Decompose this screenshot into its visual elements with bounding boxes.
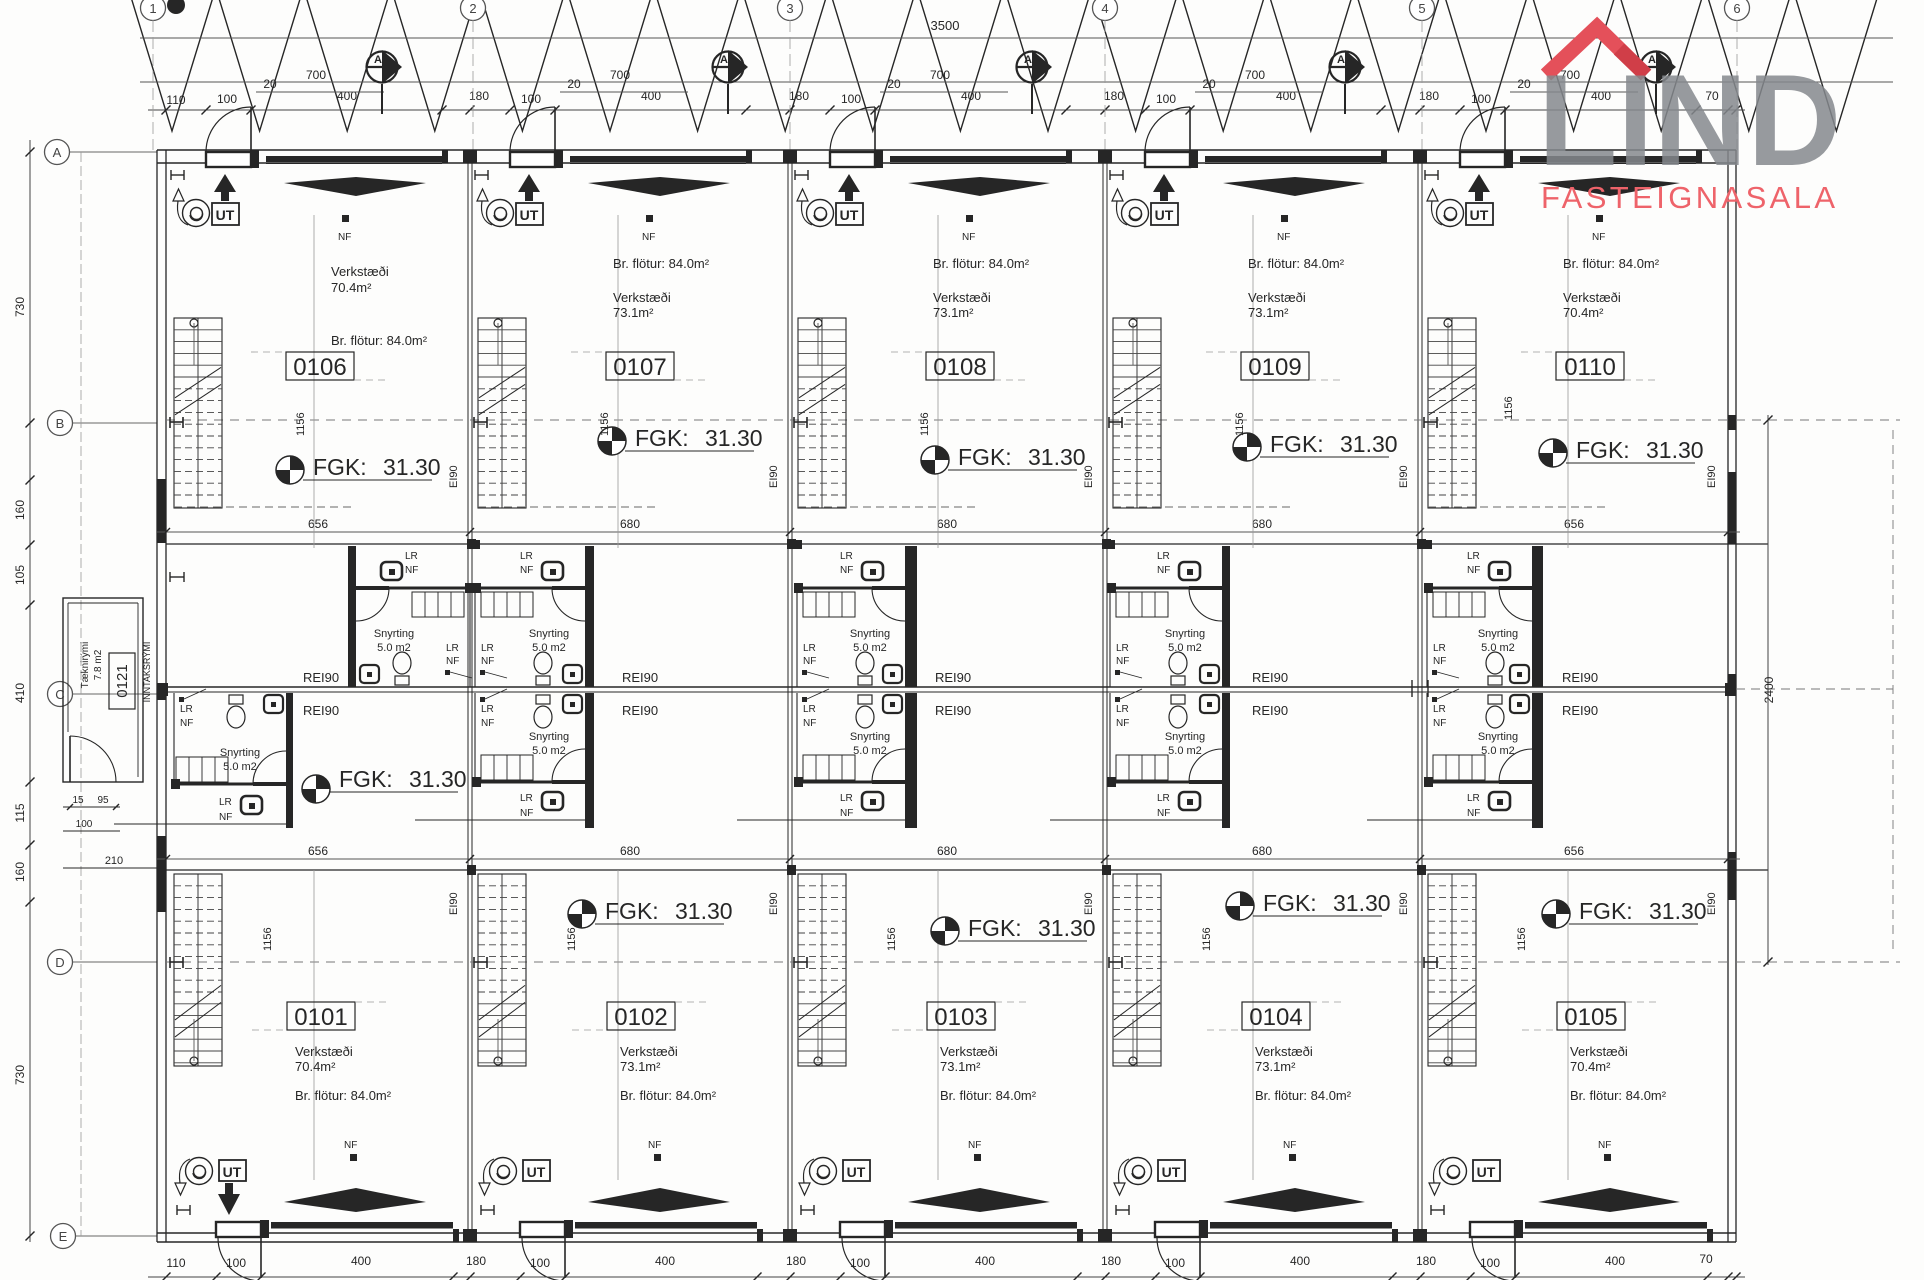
svg-text:LR: LR xyxy=(446,643,459,654)
svg-text:Verkstæði: Verkstæði xyxy=(1248,290,1306,305)
svg-text:LR: LR xyxy=(180,704,193,715)
svg-text:656: 656 xyxy=(308,844,328,858)
svg-text:Br. flötur: 84.0m²: Br. flötur: 84.0m² xyxy=(1563,256,1660,271)
svg-text:NF: NF xyxy=(1467,565,1480,576)
svg-text:INNTAKSRÝMI: INNTAKSRÝMI xyxy=(142,642,152,703)
svg-text:UT: UT xyxy=(216,207,235,223)
svg-text:FGK:: FGK: xyxy=(1263,890,1317,916)
svg-text:5.0 m2: 5.0 m2 xyxy=(1168,745,1202,757)
svg-text:680: 680 xyxy=(937,517,957,531)
svg-text:Snyrting: Snyrting xyxy=(1165,731,1205,743)
svg-text:Br. flötur: 84.0m²: Br. flötur: 84.0m² xyxy=(1248,256,1345,271)
svg-text:LR: LR xyxy=(1467,793,1480,804)
svg-text:656: 656 xyxy=(1564,844,1584,858)
svg-text:Br. flötur: 84.0m²: Br. flötur: 84.0m² xyxy=(1570,1088,1667,1103)
svg-text:160: 160 xyxy=(13,500,27,520)
svg-text:7.8 m2: 7.8 m2 xyxy=(93,649,104,680)
svg-text:Br. flötur: 84.0m²: Br. flötur: 84.0m² xyxy=(331,333,428,348)
svg-text:LR: LR xyxy=(520,551,533,562)
svg-text:400: 400 xyxy=(1605,1254,1625,1268)
svg-text:Br. flötur: 84.0m²: Br. flötur: 84.0m² xyxy=(1255,1088,1352,1103)
svg-text:Snyrting: Snyrting xyxy=(1478,628,1518,640)
svg-text:1156: 1156 xyxy=(295,412,307,436)
svg-text:REI90: REI90 xyxy=(935,703,971,718)
svg-text:5.0 m2: 5.0 m2 xyxy=(532,745,566,757)
svg-text:Verkstæði: Verkstæði xyxy=(940,1044,998,1059)
svg-text:0101: 0101 xyxy=(294,1004,347,1031)
svg-text:A: A xyxy=(53,145,62,160)
svg-text:Snyrting: Snyrting xyxy=(1165,628,1205,640)
svg-text:73.1m²: 73.1m² xyxy=(933,305,974,320)
svg-text:0102: 0102 xyxy=(614,1004,667,1031)
svg-text:1: 1 xyxy=(149,1,156,16)
svg-text:1156: 1156 xyxy=(1516,927,1528,951)
svg-text:LIND: LIND xyxy=(1538,47,1841,193)
svg-text:2400: 2400 xyxy=(1762,676,1776,703)
svg-text:656: 656 xyxy=(1564,517,1584,531)
svg-text:73.1m²: 73.1m² xyxy=(1248,305,1289,320)
svg-text:LR: LR xyxy=(1157,793,1170,804)
svg-text:NF: NF xyxy=(1277,232,1290,243)
svg-text:31.30: 31.30 xyxy=(1340,431,1398,457)
svg-text:EI90: EI90 xyxy=(1706,465,1718,488)
svg-text:31.30: 31.30 xyxy=(409,766,467,792)
svg-text:5.0 m2: 5.0 m2 xyxy=(223,761,257,773)
svg-text:20: 20 xyxy=(887,77,901,91)
svg-text:70.4m²: 70.4m² xyxy=(295,1059,336,1074)
svg-text:31.30: 31.30 xyxy=(1038,915,1096,941)
svg-text:NF: NF xyxy=(338,232,351,243)
svg-text:4: 4 xyxy=(1101,1,1108,16)
svg-text:LR: LR xyxy=(405,551,418,562)
svg-text:73.1m²: 73.1m² xyxy=(620,1059,661,1074)
svg-text:Verkstæði: Verkstæði xyxy=(613,290,671,305)
svg-text:31.30: 31.30 xyxy=(383,454,441,480)
svg-text:NF: NF xyxy=(803,718,816,729)
svg-text:5: 5 xyxy=(1418,1,1425,16)
svg-text:680: 680 xyxy=(1252,844,1272,858)
svg-text:95: 95 xyxy=(97,795,109,806)
svg-text:FGK:: FGK: xyxy=(1579,898,1633,924)
svg-text:LR: LR xyxy=(840,551,853,562)
svg-text:NF: NF xyxy=(840,808,853,819)
svg-text:180: 180 xyxy=(466,1254,486,1268)
svg-text:LR: LR xyxy=(219,797,232,808)
svg-text:5.0 m2: 5.0 m2 xyxy=(532,642,566,654)
svg-text:730: 730 xyxy=(13,297,27,317)
svg-text:NF: NF xyxy=(962,232,975,243)
svg-text:NF: NF xyxy=(405,565,418,576)
svg-text:REI90: REI90 xyxy=(622,670,658,685)
svg-text:5.0 m2: 5.0 m2 xyxy=(853,745,887,757)
svg-text:1156: 1156 xyxy=(886,927,898,951)
svg-text:Snyrting: Snyrting xyxy=(220,747,260,759)
svg-text:680: 680 xyxy=(620,844,640,858)
svg-text:400: 400 xyxy=(337,89,357,103)
svg-text:NF: NF xyxy=(803,656,816,667)
svg-text:LR: LR xyxy=(1157,551,1170,562)
svg-text:FGK:: FGK: xyxy=(958,444,1012,470)
svg-text:1156: 1156 xyxy=(566,927,578,951)
svg-text:31.30: 31.30 xyxy=(1028,444,1086,470)
svg-text:Verkstæði: Verkstæði xyxy=(331,264,389,279)
svg-text:NF: NF xyxy=(840,565,853,576)
svg-text:20: 20 xyxy=(263,77,277,91)
svg-text:0107: 0107 xyxy=(613,354,666,381)
svg-text:5.0 m2: 5.0 m2 xyxy=(377,642,411,654)
svg-text:EI90: EI90 xyxy=(768,892,780,915)
svg-text:LR: LR xyxy=(1433,643,1446,654)
svg-text:0110: 0110 xyxy=(1564,354,1616,381)
svg-text:1156: 1156 xyxy=(599,412,611,436)
svg-text:Br. flötur: 84.0m²: Br. flötur: 84.0m² xyxy=(620,1088,717,1103)
svg-text:EI90: EI90 xyxy=(1083,465,1095,488)
svg-text:LR: LR xyxy=(840,793,853,804)
svg-text:NF: NF xyxy=(520,565,533,576)
svg-text:0106: 0106 xyxy=(293,354,346,381)
svg-text:Snyrting: Snyrting xyxy=(850,731,890,743)
svg-text:REI90: REI90 xyxy=(303,670,339,685)
svg-text:LR: LR xyxy=(1467,551,1480,562)
svg-text:100: 100 xyxy=(850,1256,870,1270)
svg-text:B: B xyxy=(56,416,65,431)
svg-text:5.0 m2: 5.0 m2 xyxy=(1481,642,1515,654)
svg-text:Br. flötur: 84.0m²: Br. flötur: 84.0m² xyxy=(940,1088,1037,1103)
svg-text:100: 100 xyxy=(1480,1256,1500,1270)
svg-text:100: 100 xyxy=(530,1256,550,1270)
svg-text:700: 700 xyxy=(1245,68,1265,82)
svg-text:REI90: REI90 xyxy=(935,670,971,685)
svg-text:REI90: REI90 xyxy=(622,703,658,718)
svg-text:FGK:: FGK: xyxy=(635,425,689,451)
svg-text:UT: UT xyxy=(840,207,859,223)
svg-text:70.4m²: 70.4m² xyxy=(331,280,372,295)
svg-text:FASTEIGNASALA: FASTEIGNASALA xyxy=(1541,180,1838,215)
svg-text:180: 180 xyxy=(1104,89,1124,103)
svg-text:210: 210 xyxy=(105,855,123,867)
svg-text:A: A xyxy=(1024,54,1032,66)
svg-text:REI90: REI90 xyxy=(1252,670,1288,685)
svg-text:NF: NF xyxy=(1598,1140,1611,1151)
svg-text:LR: LR xyxy=(803,704,816,715)
svg-text:2: 2 xyxy=(469,1,476,16)
svg-text:Verkstæði: Verkstæði xyxy=(1255,1044,1313,1059)
svg-text:73.1m²: 73.1m² xyxy=(1255,1059,1296,1074)
svg-text:31.30: 31.30 xyxy=(675,898,733,924)
svg-text:NF: NF xyxy=(344,1140,357,1151)
svg-text:FGK:: FGK: xyxy=(339,766,393,792)
svg-text:110: 110 xyxy=(166,93,185,107)
svg-text:REI90: REI90 xyxy=(1562,703,1598,718)
svg-text:700: 700 xyxy=(610,68,630,82)
svg-text:Br. flötur: 84.0m²: Br. flötur: 84.0m² xyxy=(613,256,710,271)
svg-text:73.1m²: 73.1m² xyxy=(613,305,654,320)
svg-text:NF: NF xyxy=(1467,808,1480,819)
svg-text:20: 20 xyxy=(567,77,581,91)
svg-text:NF: NF xyxy=(1592,232,1605,243)
svg-text:Verkstæði: Verkstæði xyxy=(620,1044,678,1059)
svg-text:410: 410 xyxy=(13,683,27,703)
svg-text:NF: NF xyxy=(180,718,193,729)
svg-text:100: 100 xyxy=(1471,92,1491,106)
svg-text:FGK:: FGK: xyxy=(968,915,1022,941)
svg-text:Tæknirými: Tæknirými xyxy=(80,642,91,689)
svg-text:LR: LR xyxy=(803,643,816,654)
svg-text:730: 730 xyxy=(13,1065,27,1085)
svg-text:656: 656 xyxy=(308,517,328,531)
svg-text:LR: LR xyxy=(1116,704,1129,715)
svg-text:400: 400 xyxy=(351,1254,371,1268)
svg-text:UT: UT xyxy=(847,1164,866,1180)
svg-text:EI90: EI90 xyxy=(1398,465,1410,488)
svg-text:0104: 0104 xyxy=(1249,1004,1302,1031)
svg-text:A: A xyxy=(374,54,382,66)
svg-text:680: 680 xyxy=(937,844,957,858)
svg-text:LR: LR xyxy=(481,704,494,715)
svg-text:UT: UT xyxy=(527,1164,546,1180)
svg-text:400: 400 xyxy=(1276,89,1296,103)
svg-text:180: 180 xyxy=(786,1254,806,1268)
svg-text:31.30: 31.30 xyxy=(705,425,763,451)
svg-text:NF: NF xyxy=(1116,656,1129,667)
svg-text:NF: NF xyxy=(481,656,494,667)
svg-text:1156: 1156 xyxy=(262,927,274,951)
svg-text:LR: LR xyxy=(1116,643,1129,654)
svg-text:180: 180 xyxy=(789,89,809,103)
svg-text:D: D xyxy=(55,955,64,970)
svg-text:180: 180 xyxy=(469,89,489,103)
svg-text:Verkstæði: Verkstæði xyxy=(933,290,991,305)
svg-text:680: 680 xyxy=(620,517,640,531)
svg-text:UT: UT xyxy=(520,207,539,223)
svg-text:LR: LR xyxy=(520,793,533,804)
svg-text:0108: 0108 xyxy=(933,354,986,381)
svg-text:FGK:: FGK: xyxy=(1270,431,1324,457)
svg-text:A: A xyxy=(1337,54,1345,66)
svg-text:400: 400 xyxy=(961,89,981,103)
svg-text:Snyrting: Snyrting xyxy=(529,731,569,743)
svg-text:70.4m²: 70.4m² xyxy=(1563,305,1604,320)
svg-text:0121: 0121 xyxy=(114,664,131,697)
svg-text:NF: NF xyxy=(1433,718,1446,729)
svg-text:UT: UT xyxy=(1470,207,1489,223)
svg-text:100: 100 xyxy=(217,92,237,106)
svg-text:Verkstæði: Verkstæði xyxy=(1570,1044,1628,1059)
svg-text:700: 700 xyxy=(930,68,950,82)
svg-text:180: 180 xyxy=(1101,1254,1121,1268)
svg-text:EI90: EI90 xyxy=(1706,892,1718,915)
svg-text:EI90: EI90 xyxy=(768,465,780,488)
svg-text:UT: UT xyxy=(1162,1164,1181,1180)
svg-text:3500: 3500 xyxy=(931,18,960,33)
svg-text:5.0 m2: 5.0 m2 xyxy=(853,642,887,654)
svg-text:31.30: 31.30 xyxy=(1646,437,1704,463)
svg-text:100: 100 xyxy=(1156,92,1176,106)
svg-text:400: 400 xyxy=(975,1254,995,1268)
svg-text:LR: LR xyxy=(481,643,494,654)
svg-text:3: 3 xyxy=(786,1,793,16)
svg-text:5.0 m2: 5.0 m2 xyxy=(1481,745,1515,757)
svg-text:REI90: REI90 xyxy=(1562,670,1598,685)
svg-text:FGK:: FGK: xyxy=(605,898,659,924)
svg-text:EI90: EI90 xyxy=(1398,892,1410,915)
svg-text:70.4m²: 70.4m² xyxy=(1570,1059,1611,1074)
svg-text:73.1m²: 73.1m² xyxy=(940,1059,981,1074)
svg-text:1156: 1156 xyxy=(1503,396,1515,420)
svg-text:115: 115 xyxy=(13,803,27,822)
svg-text:EI90: EI90 xyxy=(448,892,460,915)
svg-text:LR: LR xyxy=(1433,704,1446,715)
svg-text:1156: 1156 xyxy=(1201,927,1213,951)
svg-text:15: 15 xyxy=(72,795,84,806)
svg-text:Snyrting: Snyrting xyxy=(529,628,569,640)
svg-text:0103: 0103 xyxy=(934,1004,987,1031)
svg-text:Snyrting: Snyrting xyxy=(1478,731,1518,743)
svg-text:400: 400 xyxy=(641,89,661,103)
svg-text:Br. flötur: 84.0m²: Br. flötur: 84.0m² xyxy=(933,256,1030,271)
svg-text:A: A xyxy=(720,54,728,66)
svg-text:0105: 0105 xyxy=(1564,1004,1617,1031)
svg-text:5.0 m2: 5.0 m2 xyxy=(1168,642,1202,654)
svg-text:FGK:: FGK: xyxy=(313,454,367,480)
svg-text:NF: NF xyxy=(446,656,459,667)
svg-text:NF: NF xyxy=(481,718,494,729)
svg-text:EI90: EI90 xyxy=(1083,892,1095,915)
svg-text:1156: 1156 xyxy=(1234,412,1246,436)
svg-text:70: 70 xyxy=(1699,1252,1713,1266)
svg-text:Snyrting: Snyrting xyxy=(374,628,414,640)
svg-text:400: 400 xyxy=(655,1254,675,1268)
svg-text:100: 100 xyxy=(226,1256,246,1270)
svg-text:680: 680 xyxy=(1252,517,1272,531)
svg-text:31.30: 31.30 xyxy=(1333,890,1391,916)
svg-text:UT: UT xyxy=(1155,207,1174,223)
svg-text:Verkstæði: Verkstæði xyxy=(295,1044,353,1059)
svg-text:100: 100 xyxy=(1165,1256,1185,1270)
svg-text:Verkstæði: Verkstæði xyxy=(1563,290,1621,305)
svg-text:110: 110 xyxy=(166,1256,185,1270)
svg-text:180: 180 xyxy=(1416,1254,1436,1268)
svg-text:20: 20 xyxy=(1202,77,1216,91)
svg-text:100: 100 xyxy=(76,819,93,830)
svg-text:NF: NF xyxy=(1283,1140,1296,1151)
svg-text:UT: UT xyxy=(1477,1164,1496,1180)
svg-text:0109: 0109 xyxy=(1248,354,1301,381)
svg-text:100: 100 xyxy=(521,92,541,106)
svg-text:Br. flötur: 84.0m²: Br. flötur: 84.0m² xyxy=(295,1088,392,1103)
svg-text:EI90: EI90 xyxy=(448,465,460,488)
svg-text:NF: NF xyxy=(968,1140,981,1151)
svg-text:700: 700 xyxy=(306,68,326,82)
svg-text:NF: NF xyxy=(1116,718,1129,729)
svg-text:NF: NF xyxy=(642,232,655,243)
svg-text:NF: NF xyxy=(648,1140,661,1151)
svg-text:31.30: 31.30 xyxy=(1649,898,1707,924)
svg-text:UT: UT xyxy=(223,1164,242,1180)
svg-text:NF: NF xyxy=(520,808,533,819)
svg-text:FGK:: FGK: xyxy=(1576,437,1630,463)
svg-text:E: E xyxy=(59,1229,68,1244)
svg-text:160: 160 xyxy=(13,862,27,882)
svg-text:NF: NF xyxy=(219,812,232,823)
svg-text:400: 400 xyxy=(1290,1254,1310,1268)
svg-text:Snyrting: Snyrting xyxy=(850,628,890,640)
svg-text:NF: NF xyxy=(1433,656,1446,667)
svg-text:REI90: REI90 xyxy=(1252,703,1288,718)
svg-text:20: 20 xyxy=(1517,77,1531,91)
svg-text:1156: 1156 xyxy=(919,412,931,436)
svg-text:105: 105 xyxy=(13,565,27,585)
svg-text:REI90: REI90 xyxy=(303,703,339,718)
svg-text:NF: NF xyxy=(1157,565,1170,576)
svg-text:6: 6 xyxy=(1733,1,1740,16)
svg-text:100: 100 xyxy=(841,92,861,106)
svg-text:NF: NF xyxy=(1157,808,1170,819)
